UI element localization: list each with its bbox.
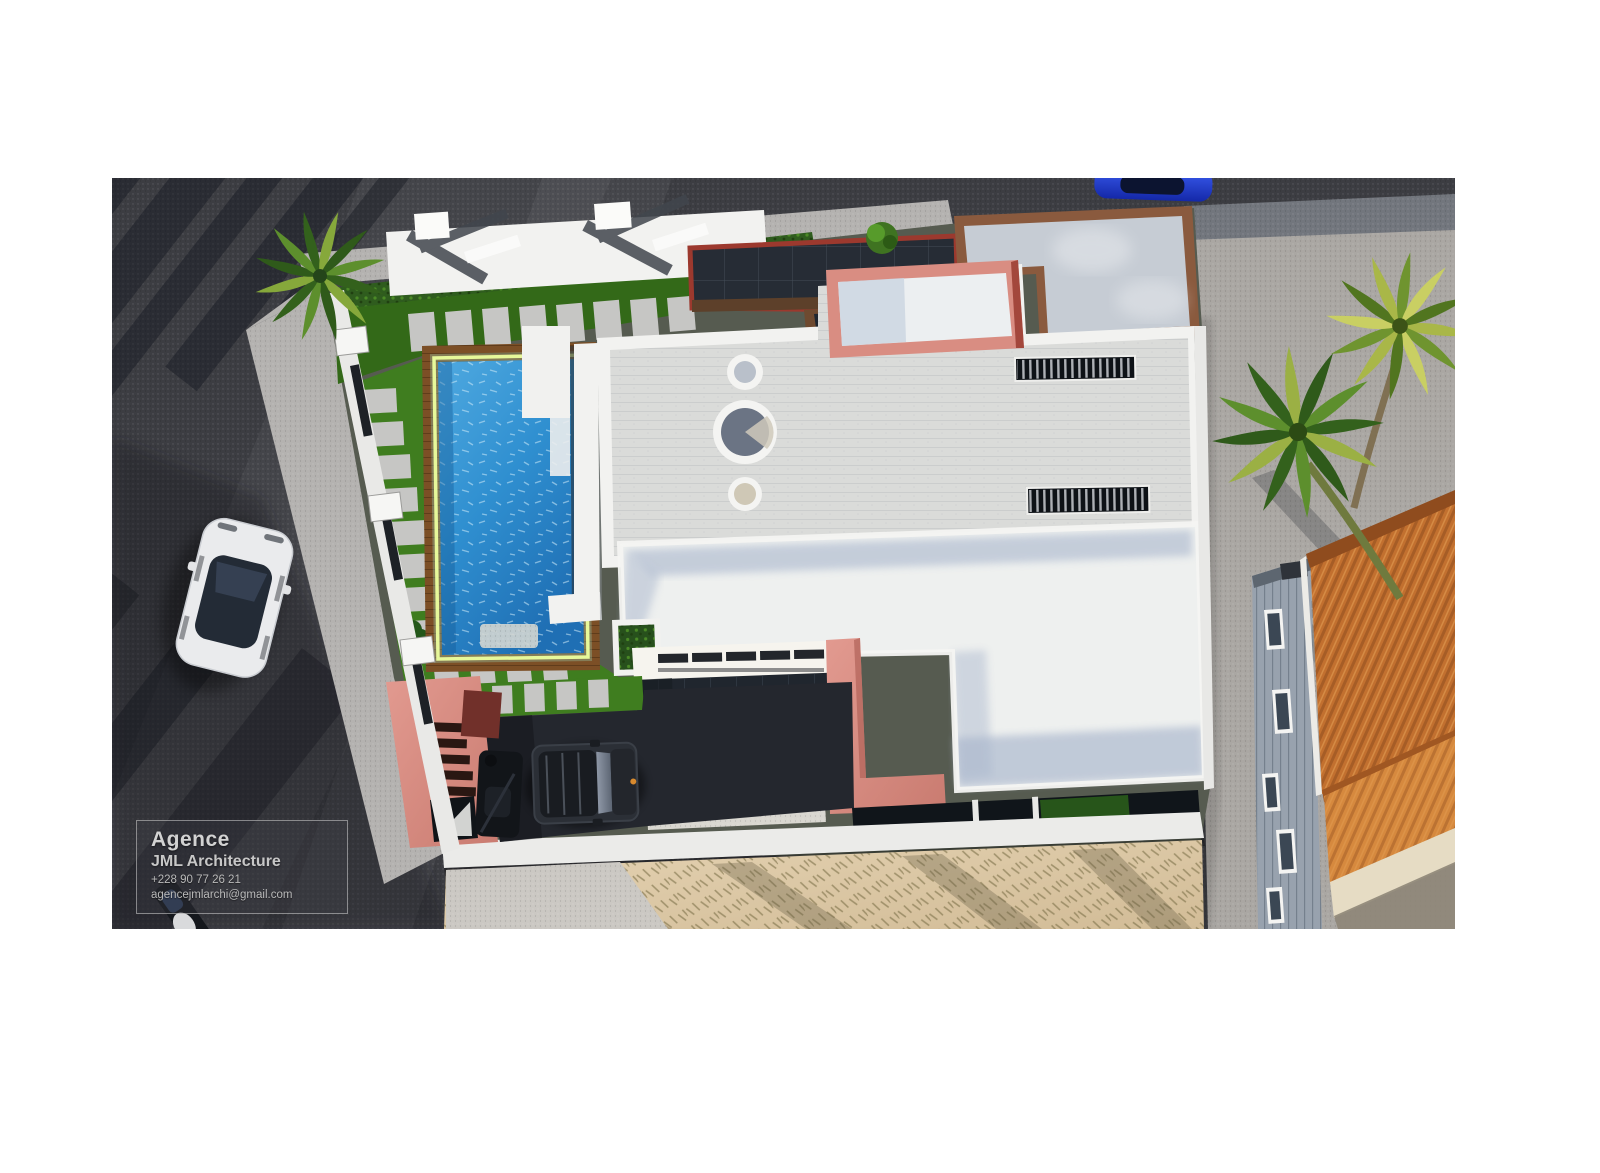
motorcycle: [475, 750, 523, 838]
tank: [461, 690, 502, 739]
salmon-roof-block: [826, 260, 1024, 358]
skylight-small-top: [727, 354, 763, 390]
roof-grille-upper: [1015, 356, 1135, 381]
white-path-foot: [548, 592, 602, 624]
terrace-tree: [866, 222, 898, 254]
watermark-phone: +228 90 77 26 21: [151, 873, 337, 889]
watermark-agency-line: JML Architecture: [151, 852, 337, 873]
white-path: [574, 343, 600, 620]
skylight-small-bottom: [728, 477, 762, 511]
suv: [524, 738, 647, 830]
roof-grille-lower: [1027, 486, 1149, 514]
blue-car: [1094, 178, 1213, 202]
watermark-email: agencejmlarchi@gmail.com: [151, 888, 337, 904]
watermark-box: Agence JML Architecture +228 90 77 26 21…: [136, 820, 348, 914]
aerial-render: Agence JML Architecture +228 90 77 26 21…: [112, 178, 1455, 929]
render-scene: [112, 178, 1455, 929]
west-wing-block: [522, 326, 570, 418]
render-page: Agence JML Architecture +228 90 77 26 21…: [0, 0, 1600, 1173]
skylight-large: [713, 400, 777, 464]
watermark-agency-name: Agence: [151, 828, 337, 852]
